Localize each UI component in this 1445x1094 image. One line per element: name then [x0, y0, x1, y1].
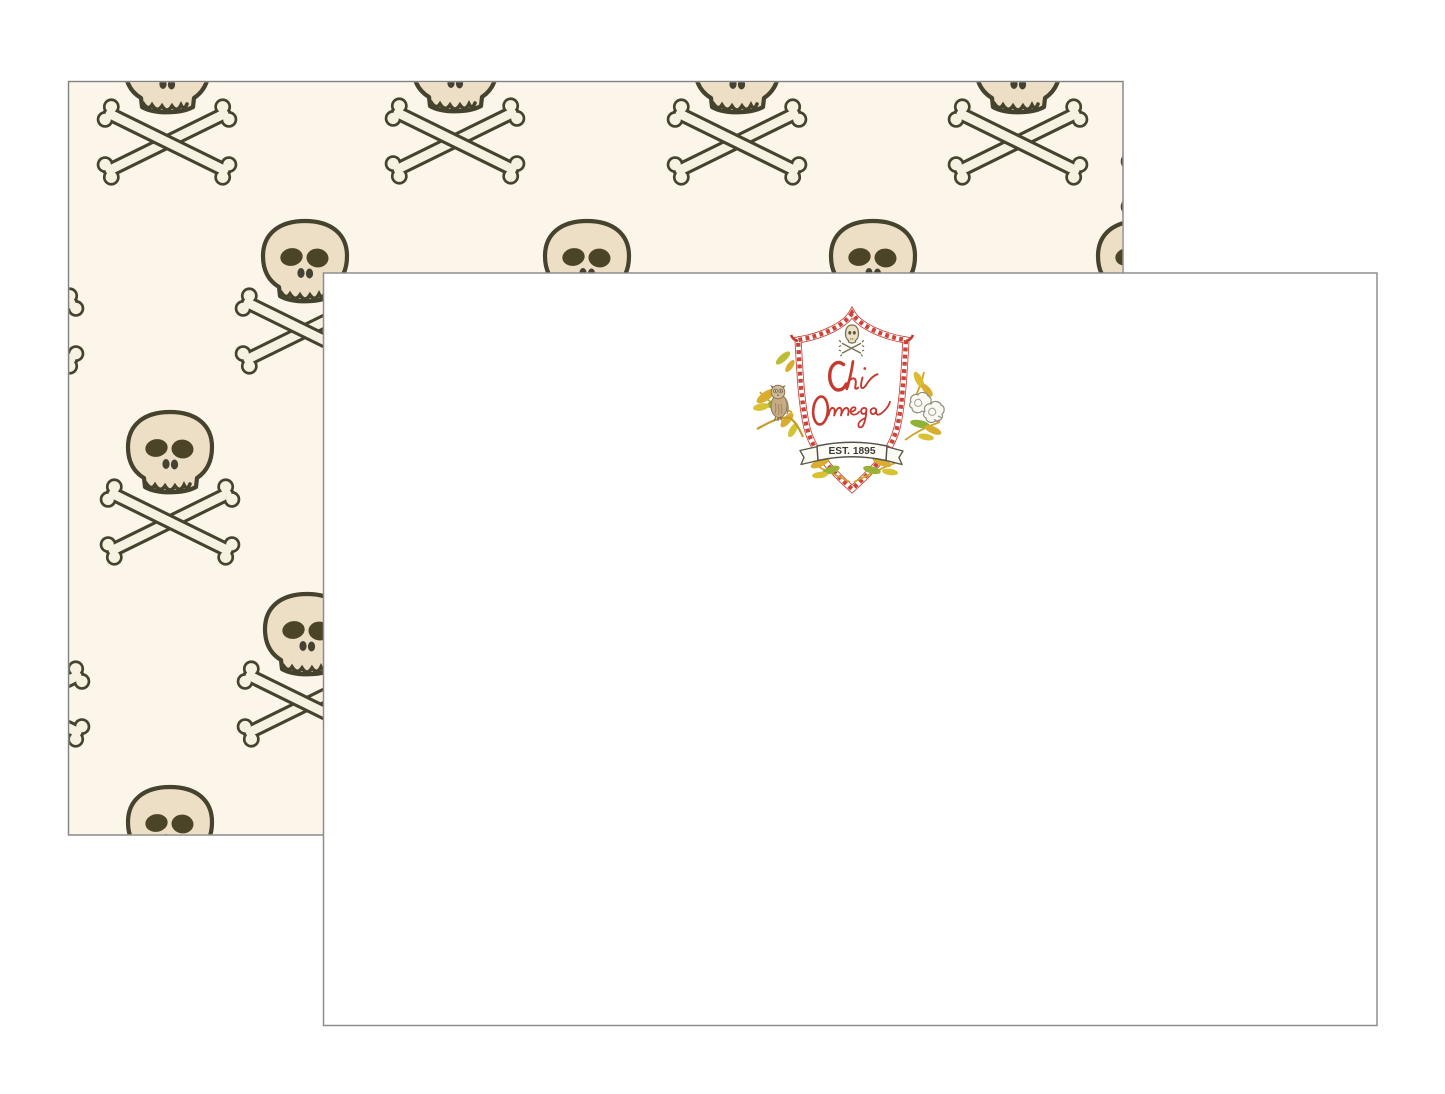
- svg-text:EST. 1895: EST. 1895: [829, 445, 876, 457]
